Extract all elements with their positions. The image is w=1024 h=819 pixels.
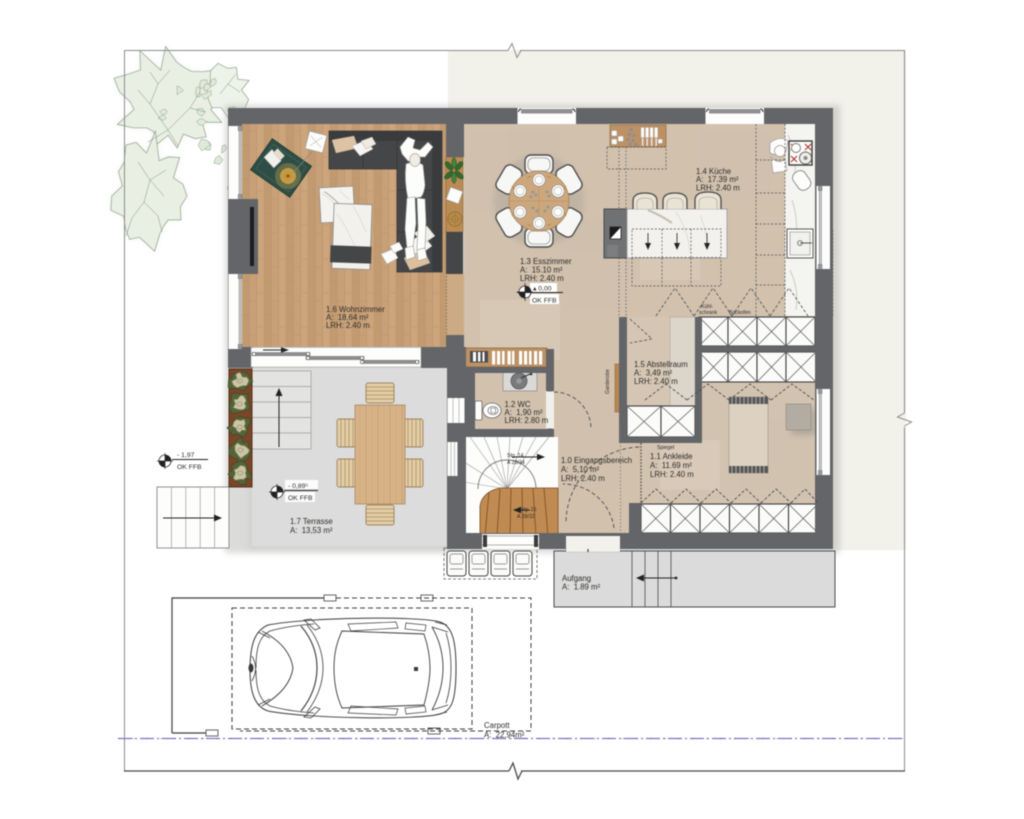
svg-text:OK FFB: OK FFB <box>177 464 202 471</box>
svg-text:1.7 Terrasse: 1.7 Terrasse <box>290 517 333 526</box>
svg-text:OK FFB: OK FFB <box>532 298 557 305</box>
svg-text:schrank: schrank <box>699 310 718 316</box>
svg-text:Backofen: Backofen <box>729 310 751 316</box>
svg-text:1.1 Ankleide: 1.1 Ankleide <box>650 452 692 461</box>
svg-text:- 1,97: - 1,97 <box>177 452 195 459</box>
svg-text:A 28/34: A 28/34 <box>507 460 525 466</box>
svg-text:A: 5,10 m²: A: 5,10 m² <box>561 465 600 474</box>
svg-text:A: 22,94m²: A: 22,94m² <box>484 731 525 740</box>
svg-text:Stg. 14: Stg. 14 <box>507 453 524 459</box>
svg-text:A 28/32: A 28/32 <box>517 514 535 520</box>
svg-text:LRH: 2.40 m: LRH: 2.40 m <box>561 474 605 483</box>
svg-text:A: 11.69 m²: A: 11.69 m² <box>650 461 692 470</box>
svg-text:OK FFB: OK FFB <box>288 495 313 502</box>
svg-text:LRH: 2.80 m: LRH: 2.80 m <box>505 416 549 425</box>
svg-text:A: 1.89 m²: A: 1.89 m² <box>562 583 601 592</box>
svg-text:LRH: 2.40 m: LRH: 2.40 m <box>326 321 370 330</box>
svg-text:LRH: 2.40 m: LRH: 2.40 m <box>520 274 564 283</box>
svg-text:- 0,89⁵: - 0,89⁵ <box>288 483 308 490</box>
svg-text:LRH: 2.40 m: LRH: 2.40 m <box>696 184 740 193</box>
svg-text:Carpott: Carpott <box>484 721 510 730</box>
svg-text:1.0 Eingangsbereich: 1.0 Eingangsbereich <box>561 456 632 465</box>
svg-text:LRH: 2.40 m: LRH: 2.40 m <box>650 470 694 479</box>
svg-text:LRH: 2.40 m: LRH: 2.40 m <box>634 377 678 386</box>
svg-text:Garderobe: Garderobe <box>605 369 611 394</box>
svg-text:▴ 0,00: ▴ 0,00 <box>533 286 552 293</box>
svg-text:Stg. 15: Stg. 15 <box>520 507 537 513</box>
svg-text:A: 13,53 m²: A: 13,53 m² <box>290 526 333 535</box>
svg-text:Spiegel: Spiegel <box>657 445 674 451</box>
